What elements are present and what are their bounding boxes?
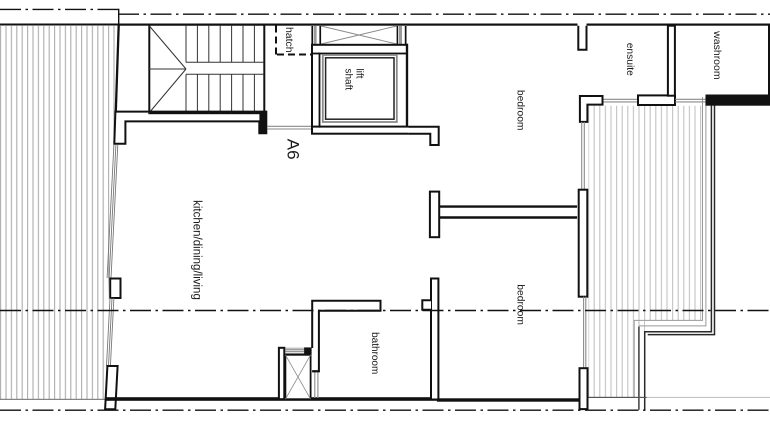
svg-text:shaft: shaft	[343, 69, 354, 91]
svg-text:washroom: washroom	[711, 30, 723, 80]
svg-text:hatch: hatch	[283, 27, 295, 53]
svg-text:A6: A6	[284, 139, 303, 160]
svg-text:kitchen/dining/living: kitchen/dining/living	[191, 200, 203, 300]
svg-text:bedroom: bedroom	[515, 90, 526, 131]
svg-text:bathroom: bathroom	[369, 332, 380, 374]
svg-text:ensuite: ensuite	[624, 43, 635, 76]
svg-text:bedroom: bedroom	[515, 284, 526, 325]
svg-text:lift: lift	[354, 69, 365, 79]
